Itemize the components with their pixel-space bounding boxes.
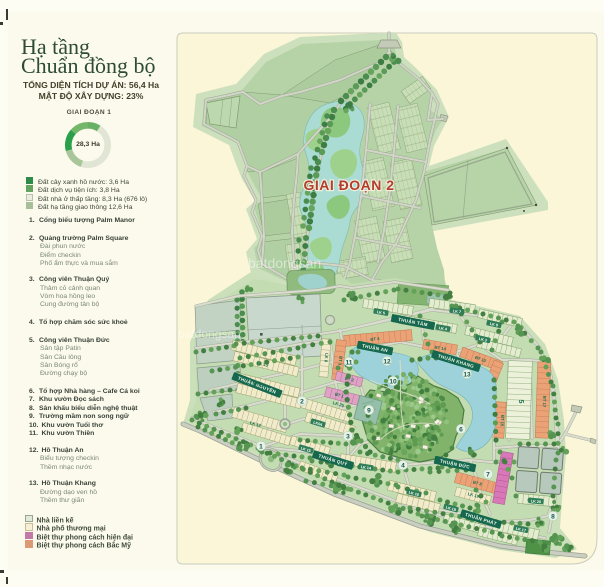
svg-text:BT 15: BT 15 — [500, 415, 506, 427]
svg-text:batdongsan: batdongsan — [248, 255, 321, 271]
svg-text:BT 17: BT 17 — [542, 396, 547, 408]
svg-text:9: 9 — [367, 407, 371, 414]
svg-text:5: 5 — [517, 399, 524, 403]
svg-text:11: 11 — [346, 359, 353, 366]
svg-text:2: 2 — [300, 398, 304, 405]
svg-text:LK 8: LK 8 — [324, 353, 330, 363]
svg-text:4: 4 — [401, 462, 405, 469]
svg-text:8: 8 — [551, 513, 555, 520]
svg-text:GIAI ĐOẠN 2: GIAI ĐOẠN 2 — [303, 177, 394, 193]
svg-text:13: 13 — [463, 371, 471, 378]
svg-text:batdongsan: batdongsan — [178, 327, 241, 341]
svg-text:12: 12 — [383, 358, 391, 365]
svg-text:1: 1 — [259, 443, 263, 450]
svg-text:6: 6 — [459, 426, 463, 433]
svg-text:10: 10 — [389, 378, 397, 385]
svg-text:BT 4: BT 4 — [370, 336, 380, 342]
svg-text:7: 7 — [486, 471, 490, 478]
svg-text:3: 3 — [346, 433, 350, 440]
